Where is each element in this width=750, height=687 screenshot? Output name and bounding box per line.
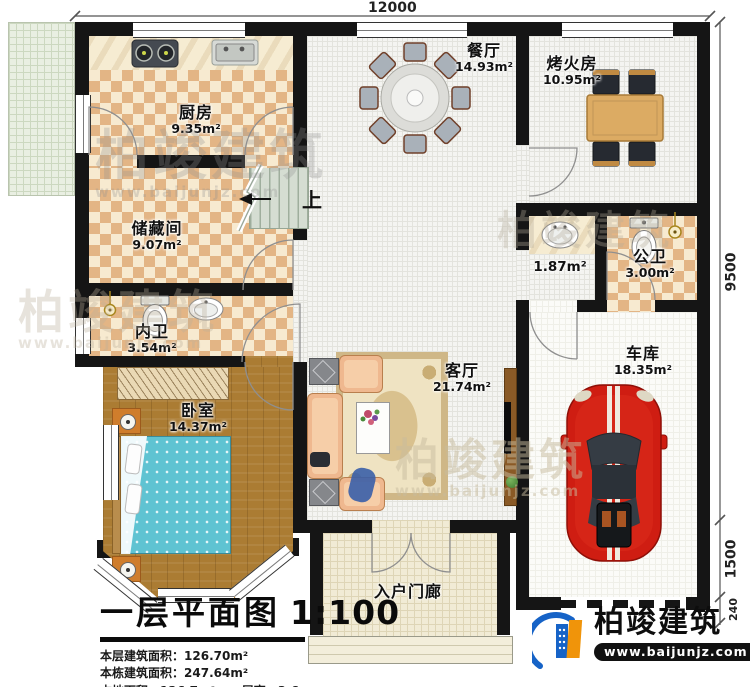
side-table [309,479,339,506]
loveseat [339,355,383,393]
door-gap [530,300,577,312]
coffee-table [356,402,390,454]
side-table [309,358,339,385]
wall [75,155,89,168]
tv [504,402,511,454]
wall [293,22,307,155]
room-label-garage: 车库 18.35m² [614,345,672,378]
door-gap [293,302,307,362]
lamp-icon [120,414,136,430]
stat-row: 本层建筑面积：126.70m² [100,648,400,665]
room-label-living: 客厅 21.74m² [433,362,491,395]
wall [293,155,307,168]
terrace-floor [8,22,75,196]
room-label-dining: 餐厅 14.93m² [455,42,513,75]
brand-text: 柏竣建筑 www.baijunjz.com [594,608,750,661]
door-gap [245,155,293,168]
wash-nook-counter [529,216,595,254]
brand-logo: 柏竣建筑 www.baijunjz.com [532,608,750,676]
floor-plan: 12000 9500 1500 240 厨房 9.35m² 餐厅 14.93m²… [0,0,750,687]
wall [577,300,607,312]
window [75,318,91,354]
door-gap [516,145,529,203]
wall [516,203,529,250]
private-wc-floor [89,296,293,356]
plant-icon [506,476,518,488]
wall [75,356,245,367]
door-gap [89,155,137,168]
wall [697,22,710,610]
wall [75,283,293,296]
room-label-fire-room: 烤火房 10.95m² [543,55,601,88]
wall [293,520,372,533]
wall [75,22,89,356]
room-label-storage: 储藏间 9.07m² [131,220,182,253]
window [357,22,467,38]
brand-logo-icon [532,608,594,676]
window [75,95,91,153]
dim-right-garage: 1500 [723,540,739,579]
door-gap [516,250,529,300]
sofa-item [310,452,330,467]
kitchen-counter [89,36,293,70]
door-gap [245,356,293,367]
wall [137,155,245,168]
door-gap [607,300,655,312]
room-label-wash-nook: 1.87m² [533,260,586,276]
window [103,425,119,500]
wall [293,362,307,520]
room-label-kitchen: 厨房 9.35m² [171,104,220,137]
wall [497,533,510,635]
dim-right-main: 9500 [723,253,739,292]
wall [516,300,529,597]
title-underline [100,637,305,642]
door-gap [372,520,450,533]
title-block: 一层平面图1:100 本层建筑面积：126.70m² 本栋建筑面积：247.64… [100,586,400,687]
stat-row: 占地面积：126.7m²层高：3.6m [100,683,400,687]
room-label-bedroom: 卧室 14.37m² [169,402,227,435]
room-label-private-wc: 内卫 3.54m² [127,323,176,356]
wardrobe [117,367,229,400]
area-stats: 本层建筑面积：126.70m² 本栋建筑面积：247.64m² 占地面积：126… [100,648,400,687]
wall [516,203,697,216]
plan-scale: 1:100 [290,593,400,632]
wall [516,22,529,145]
stairs-up-label: 上 [302,184,322,213]
staircase [250,168,308,228]
window [562,22,673,38]
plan-title: 一层平面图1:100 [100,586,400,634]
stat-row: 本栋建筑面积：247.64m² [100,665,400,682]
wall [595,216,607,300]
room-label-public-wc: 公卫 3.00m² [625,248,674,281]
window [133,22,245,38]
door-gap [293,240,307,302]
dim-top: 12000 [368,0,417,16]
